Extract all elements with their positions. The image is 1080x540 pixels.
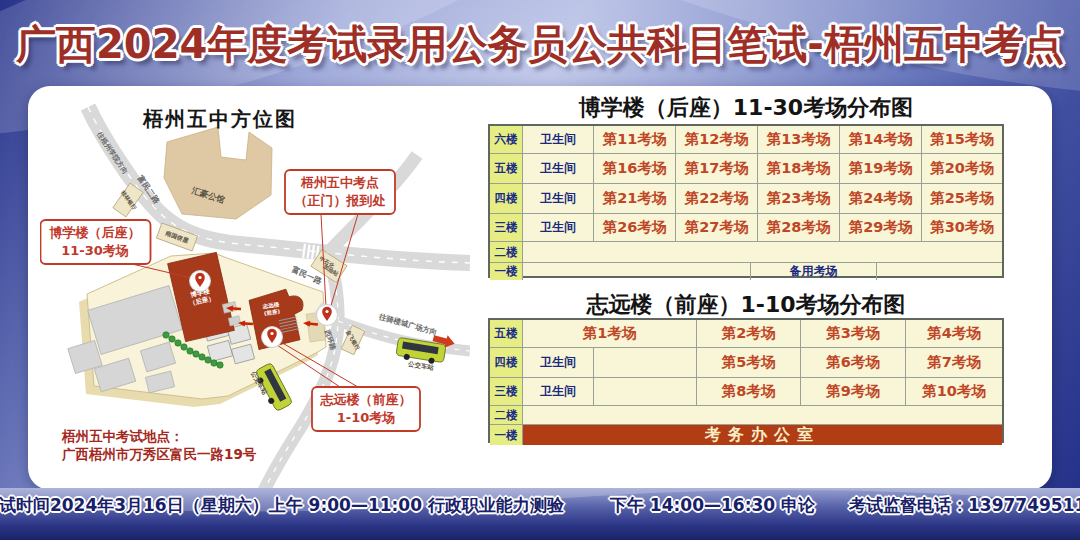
room-cell: 第26考场 (593, 214, 675, 241)
room-cell: 第16考场 (593, 154, 675, 183)
callout-boxue-line1: 博学楼（后座） (49, 225, 141, 240)
floor-label: 五楼 (490, 320, 522, 347)
table1-title: 博学楼（后座）11-30考场分布图 (488, 93, 1004, 123)
exam-time-morning: 考试时间2024年3月16日（星期六）上午 9:00—11:00 行政职业能力测… (0, 494, 564, 517)
table-zhiyuan-floors: 五楼 第1考场 第2考场 第3考场 第4考场 四楼 卫生间 第5考场 第6考场 … (488, 318, 1004, 443)
huihao-mansion: 汇豪公馆 (164, 127, 272, 219)
room-cell: 第8考场 (696, 378, 800, 405)
floor-label: 三楼 (490, 378, 522, 405)
room-cell: 第20考场 (921, 154, 1002, 183)
floor-label: 二楼 (490, 406, 522, 424)
supervision-phone: 考试监督电话：13977495118 (849, 494, 1080, 517)
table-row: 二楼 (490, 405, 1002, 424)
room-cell: 第14考场 (839, 126, 921, 153)
callout-gate-line2: （正门）报到处 (295, 193, 386, 208)
zhiyuan-pin (262, 327, 283, 348)
room-cell: 第22考场 (675, 184, 757, 213)
floor-label: 四楼 (490, 348, 522, 377)
table-row: 六楼 卫生间 第11考场 第12考场 第13考场 第14考场 第15考场 (490, 126, 1002, 153)
empty-cell (876, 263, 1002, 280)
room-cell: 第28考场 (757, 214, 839, 241)
room-cell: 第23考场 (757, 184, 839, 213)
page-title: 广西2024年度考试录用公务员公共科目笔试-梧州五中考点 (0, 17, 1080, 72)
room-cell: 第4考场 (905, 320, 1002, 347)
table-row: 一楼 考务办公室 (490, 424, 1002, 445)
callout-gate: 梧州五中考点 （正门）报到处 (285, 170, 395, 214)
callout-boxue-line2: 11-30考场 (61, 243, 129, 258)
map-title: 梧州五中方位图 (142, 107, 297, 131)
floor-label: 一楼 (490, 263, 522, 280)
room-cell: 第12考场 (675, 126, 757, 153)
table-row: 四楼 卫生间 第21考场 第22考场 第23考场 第24考场 第25考场 (490, 183, 1002, 213)
room-cell: 第21考场 (593, 184, 675, 213)
room-cell: 第15考场 (921, 126, 1002, 153)
toilet-cell: 卫生间 (522, 378, 593, 405)
room-cell: 第13考场 (757, 126, 839, 153)
boxue-pin (190, 271, 211, 292)
footer-bar: 考试时间2024年3月16日（星期六）上午 9:00—11:00 行政职业能力测… (0, 488, 1080, 540)
toilet-cell: 卫生间 (522, 348, 593, 377)
room-cell: 第3考场 (800, 320, 905, 347)
floor-label: 五楼 (490, 154, 522, 183)
room-cell: 第19考场 (839, 154, 921, 183)
room-cell: 第5考场 (696, 348, 800, 377)
callout-zhiyuan-line1: 志远楼（前座） (320, 392, 412, 407)
room-cell: 第1考场 (522, 320, 696, 347)
room-cell: 第25考场 (921, 184, 1002, 213)
toilet-cell: 卫生间 (522, 126, 593, 153)
room-cell: 第7考场 (905, 348, 1002, 377)
callout-zhiyuan: 志远楼（前座） 1-10考场 (312, 387, 420, 431)
exam-address-label: 梧州五中考试地点： (61, 428, 184, 444)
exam-office-cell: 考务办公室 (522, 425, 1002, 445)
exam-address: 广西梧州市万秀区富民一路19号 (61, 446, 257, 462)
gate-pin (317, 305, 338, 326)
callout-zhiyuan-line2: 1-10考场 (337, 410, 396, 425)
callout-gate-line1: 梧州五中考点 (300, 175, 379, 190)
room-cell: 第30考场 (921, 214, 1002, 241)
table-row: 三楼 卫生间 第8考场 第9考场 第10考场 (490, 377, 1002, 405)
table-row: 一楼 备用考场 (490, 262, 1002, 280)
empty-cell (593, 378, 696, 405)
room-cell: 第10考场 (905, 378, 1002, 405)
table-row: 五楼 第1考场 第2考场 第3考场 第4考场 (490, 320, 1002, 347)
floor-label: 三楼 (490, 214, 522, 241)
room-cell: 第9考场 (800, 378, 905, 405)
floor-label: 四楼 (490, 184, 522, 213)
toilet-cell: 卫生间 (522, 214, 593, 241)
room-cell: 第27考场 (675, 214, 757, 241)
floor-label: 六楼 (490, 126, 522, 153)
table-row: 五楼 卫生间 第16考场 第17考场 第18考场 第19考场 第20考场 (490, 153, 1002, 183)
table-row: 四楼 卫生间 第5考场 第6考场 第7考场 (490, 347, 1002, 377)
table-row: 二楼 (490, 241, 1002, 262)
table2-title: 志远楼（前座）1-10考场分布图 (488, 290, 1004, 320)
table-boxue-floors: 六楼 卫生间 第11考场 第12考场 第13考场 第14考场 第15考场 五楼 … (488, 124, 1004, 278)
toilet-cell: 卫生间 (522, 154, 593, 183)
empty-cell (593, 348, 696, 377)
jinfei-bank: 金飞银行 (341, 325, 365, 354)
room-cell: 第2考场 (696, 320, 800, 347)
room-cell: 第18考场 (757, 154, 839, 183)
spare-room-cell: 备用考场 (750, 263, 876, 280)
callout-boxue: 博学楼（后座） 11-30考场 (41, 220, 151, 264)
room-cell: 第29考场 (839, 214, 921, 241)
table-row: 三楼 卫生间 第26考场 第27考场 第28考场 第29考场 第30考场 (490, 213, 1002, 241)
room-cell: 第17考场 (675, 154, 757, 183)
exam-time-afternoon: 下午 14:00—16:30 申论 (610, 494, 815, 517)
poster: 广西2024年度考试录用公务员公共科目笔试-梧州五中考点 (0, 0, 1080, 540)
empty-cell (522, 263, 750, 280)
room-cell: 第6考场 (800, 348, 905, 377)
empty-cell (522, 406, 1002, 424)
location-map: 博学楼 （后座） 志远楼 (前座) (40, 95, 470, 495)
room-cell: 第11考场 (593, 126, 675, 153)
floor-label: 一楼 (490, 425, 522, 445)
floor-label: 二楼 (490, 242, 522, 262)
room-cell: 第24考场 (839, 184, 921, 213)
empty-cell (522, 242, 1002, 262)
toilet-cell: 卫生间 (522, 184, 593, 213)
